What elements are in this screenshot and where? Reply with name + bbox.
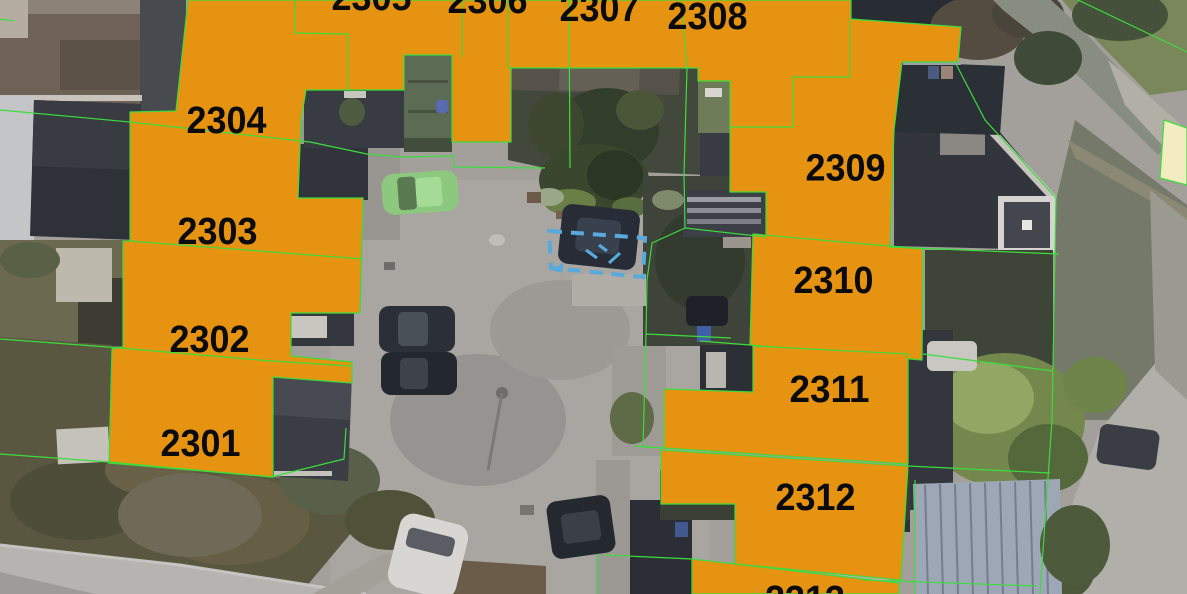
svg-text:2311: 2311: [790, 369, 870, 411]
svg-text:2306: 2306: [448, 0, 528, 22]
svg-text:2307: 2307: [560, 0, 640, 30]
svg-text:2310: 2310: [794, 260, 874, 302]
svg-text:2312: 2312: [776, 477, 856, 519]
svg-text:2313: 2313: [765, 579, 845, 594]
svg-text:2301: 2301: [161, 423, 241, 465]
svg-text:2303: 2303: [178, 211, 258, 253]
svg-text:2305: 2305: [332, 0, 412, 19]
svg-text:2308: 2308: [668, 0, 748, 38]
svg-text:2304: 2304: [187, 100, 267, 142]
svg-text:2309: 2309: [806, 148, 886, 190]
svg-text:2302: 2302: [170, 319, 250, 361]
